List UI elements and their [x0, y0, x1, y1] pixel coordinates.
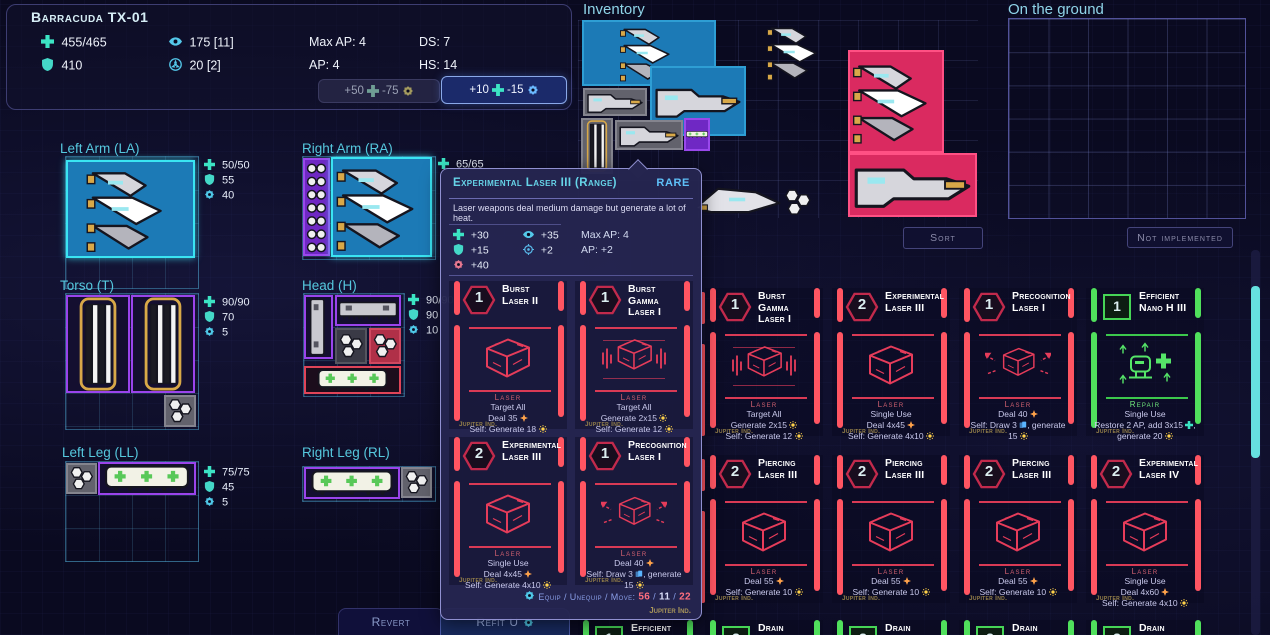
sh-icon	[453, 244, 464, 255]
dmg-icon	[776, 577, 784, 585]
card-title: Burst Gamma Laser I	[628, 284, 682, 319]
card-text: Single UseDeal 4x45 Self: Generate 4x10	[451, 558, 565, 591]
card-cost: 2	[1099, 459, 1133, 489]
card-art-cube	[475, 332, 541, 387]
card-title: Precognition Laser I	[628, 440, 682, 463]
card-drain[interactable]: 3 Drain	[959, 620, 1077, 635]
equipped-item-right-leg-tread[interactable]	[304, 467, 400, 499]
card-title: Piercing Laser III	[1012, 458, 1066, 481]
tooltip-stat: +15	[453, 244, 489, 259]
heat-icon	[922, 588, 930, 596]
sh-icon	[408, 309, 419, 320]
tooltip-maker: Jupiter Ind.	[649, 606, 691, 615]
card-drain[interactable]: 3 Drain	[832, 620, 950, 635]
divider	[449, 224, 561, 225]
card-title: Experimental Laser III	[502, 440, 556, 463]
card-title: Piercing Laser III	[758, 458, 812, 481]
vent-icon	[169, 58, 182, 71]
card-art-wave	[601, 332, 667, 387]
gear-icon	[204, 189, 215, 200]
gear-icon	[408, 324, 419, 335]
card-type: Laser	[705, 567, 823, 576]
card-cost: 2	[845, 459, 879, 489]
card-title: Drain	[1012, 623, 1066, 635]
gear-icon	[527, 84, 539, 96]
card-efficient-nano-h-iii[interactable]: 1 Efficient Nano H III Repair Single Use…	[1086, 288, 1204, 436]
stat-vent: 20 [2]	[169, 58, 221, 73]
hp-icon	[367, 85, 379, 97]
part-stat: 50/50	[204, 159, 250, 174]
card-art-wave	[731, 339, 797, 394]
part-stat: 5	[204, 326, 250, 341]
part-stat: 90/90	[204, 296, 250, 311]
part-label-right-arm: Right Arm (RA)	[302, 141, 393, 156]
repair-option-button[interactable]: +50 -75	[318, 79, 440, 103]
card-experimental-laser-iii[interactable]: 2 Experimental Laser III Laser Single Us…	[832, 288, 950, 436]
card-type: Laser	[832, 567, 950, 576]
heat-icon	[789, 421, 797, 429]
card-cost: 1	[588, 441, 622, 471]
stat-health: 455/465	[41, 35, 107, 50]
inventory-item-tread-single[interactable]	[684, 118, 710, 151]
dmg-icon	[524, 570, 532, 578]
equipped-item-head-tread[interactable]	[304, 366, 401, 394]
heat-icon	[636, 581, 644, 589]
card-title: Drain	[1139, 623, 1193, 635]
card-maker: Jupiter Ind.	[1096, 595, 1134, 602]
gear-icon	[402, 85, 414, 97]
sh-icon	[204, 481, 215, 492]
card-title: Precognition Laser I	[1012, 291, 1066, 314]
gear-icon	[524, 590, 535, 601]
hp-icon	[204, 159, 215, 170]
card-text: Deal 40 Self: Draw 3 , generate15	[961, 409, 1075, 442]
gear-icon	[204, 496, 215, 507]
part-stats-torso: 90/90 70 5	[204, 296, 250, 341]
heat-icon	[659, 414, 667, 422]
card-maker: Jupiter Ind.	[459, 577, 497, 584]
card-title: Drain	[885, 623, 939, 635]
card-art-arrows	[601, 488, 667, 543]
card-cost: 2	[972, 459, 1006, 489]
card-cost: 1	[595, 626, 623, 635]
stat-ds: DS: 7	[419, 35, 450, 49]
tooltip-stat: +40	[453, 259, 489, 274]
part-stat: 45	[204, 481, 250, 496]
tooltip-stats-col2: +35 +2	[523, 229, 559, 259]
part-label-torso: Torso (T)	[60, 278, 114, 293]
inventory-item-arm-plain[interactable]	[748, 21, 844, 83]
card-type: Laser	[959, 567, 1077, 576]
ground-grid	[1008, 18, 1246, 219]
card-type: Laser	[449, 393, 567, 402]
scrollbar-thumb[interactable]	[1251, 286, 1260, 458]
card-cost: 2	[845, 292, 879, 322]
card-title: Efficient Nano H III	[1139, 291, 1193, 314]
inventory-item-gun-pink[interactable]	[848, 153, 977, 217]
card-cost: 3	[722, 626, 750, 635]
equip-cost: 56	[638, 592, 650, 603]
card-piercing-laser-iii[interactable]: 2 Piercing Laser III Laser Deal 55 Self:…	[705, 455, 823, 603]
card-maker: Jupiter Ind.	[715, 595, 753, 602]
hp-icon	[408, 294, 419, 305]
card-burst-laser-ii[interactable]: 1 Burst Laser II Laser Target AllDeal 35…	[449, 281, 567, 429]
dmg-icon	[907, 421, 915, 429]
equipped-item-left-leg-hex-module[interactable]	[66, 463, 97, 494]
part-stats-left-leg: 75/75 45 5	[204, 466, 250, 511]
tooltip-stat: +30	[453, 229, 489, 244]
card-precognition-laser-i[interactable]: 1 Precognition Laser I Laser Deal 40 Sel…	[959, 288, 1077, 436]
sort-button[interactable]: Sort	[903, 227, 983, 249]
inventory-item-experimental-laser-hovered[interactable]	[848, 50, 944, 153]
stat-view-range: 175 [11]	[169, 35, 234, 50]
equipped-item-head-chip-vertical[interactable]	[304, 295, 333, 359]
gear-icon	[204, 326, 215, 337]
card-cost: 3	[976, 626, 1004, 635]
heat-icon	[1165, 432, 1173, 440]
hp-icon	[453, 229, 464, 240]
rarity-badge: RARE	[656, 177, 690, 189]
unequip-cost: 11	[659, 592, 670, 603]
mech-outfit-screen: Barracuda TX-01 455/465 410 175 [11] 20 …	[0, 0, 1270, 635]
heat-icon	[1020, 432, 1028, 440]
card-cost: 2	[462, 441, 496, 471]
gearp-icon	[453, 259, 464, 270]
card-type: Laser	[959, 400, 1077, 409]
heat-icon	[1180, 599, 1188, 607]
heat-icon	[539, 425, 547, 433]
dmg-icon	[520, 414, 528, 422]
tooltip-stat: Max AP: 4	[581, 229, 629, 244]
equipped-item-left-arm-laser[interactable]	[66, 160, 195, 258]
hp-icon	[492, 84, 504, 96]
heat-icon	[926, 432, 934, 440]
equipped-item-head-hex-module-1[interactable]	[335, 328, 367, 364]
card-art-arrows	[985, 339, 1051, 394]
equipped-item-right-leg-hex-module[interactable]	[401, 467, 432, 498]
card-art-cube	[858, 506, 924, 561]
card-burst-gamma-laser-i[interactable]: 1 Burst Gamma Laser I Laser Target AllGe…	[575, 281, 693, 429]
part-stat: 70	[204, 311, 250, 326]
card-cost: 1	[972, 292, 1006, 322]
tooltip-title: Experimental Laser III (Range)	[453, 177, 617, 189]
tooltip-stats-col3: Max AP: 4AP: +2	[581, 229, 629, 259]
card-maker: Jupiter Ind.	[1096, 428, 1134, 435]
stat-max-ap: Max AP: 4	[309, 35, 366, 49]
card-text: Single UseDeal 4x60 Self: Generate 4x10	[1088, 576, 1202, 609]
part-stat: 5	[204, 496, 250, 511]
mech-name: Barracuda TX-01	[31, 9, 148, 25]
card-title: Burst Laser II	[502, 284, 556, 307]
card-piercing-laser-iii[interactable]: 2 Piercing Laser III Laser Deal 55 Self:…	[959, 455, 1077, 603]
card-type: Laser	[575, 393, 693, 402]
card-maker: Jupiter Ind.	[969, 428, 1007, 435]
equipped-item-head-hex-module-2[interactable]	[369, 328, 401, 364]
card-cost: 1	[588, 285, 622, 315]
inventory-item-wing[interactable]	[693, 182, 783, 217]
equipped-item-torso-radiator-1[interactable]	[66, 295, 130, 393]
stat-ap: AP: 4	[309, 58, 340, 72]
part-stat: 40	[204, 189, 250, 204]
heat-icon	[543, 581, 551, 589]
part-label-right-leg: Right Leg (RL)	[302, 445, 390, 460]
tooltip-stats-col1: +30 +15 +40	[453, 229, 489, 274]
card-experimental-laser-iv[interactable]: 2 Experimental Laser IV Laser Single Use…	[1086, 455, 1204, 603]
card-burst-gamma-laser-i[interactable]: 1 Burst Gamma Laser I Laser Target AllGe…	[705, 288, 823, 436]
card-text: Deal 40 Self: Draw 3 , generate15	[577, 558, 691, 591]
card-cost: 1	[718, 292, 752, 322]
card-type: Laser	[832, 400, 950, 409]
eye-icon	[523, 229, 534, 240]
card-type: Laser	[449, 549, 567, 558]
card-text: Target AllDeal 35 Self: Generate 18	[451, 402, 565, 435]
heat-icon	[795, 432, 803, 440]
card-art-cube	[858, 339, 924, 394]
card-type: Laser	[705, 400, 823, 409]
tgt-icon	[523, 244, 534, 255]
card-cost: 2	[718, 459, 752, 489]
inventory-item-radiator[interactable]	[581, 118, 613, 174]
hp-icon	[204, 296, 215, 307]
heat-icon	[795, 588, 803, 596]
repair-selected-button[interactable]: +10 -15	[441, 76, 567, 104]
card-maker: Jupiter Ind.	[842, 595, 880, 602]
card-efficient[interactable]: 1 Efficient	[578, 620, 696, 635]
part-label-left-leg: Left Leg (LL)	[62, 445, 139, 460]
card-cost: 3	[849, 626, 877, 635]
card-art-cube	[475, 488, 541, 543]
card-maker: Jupiter Ind.	[715, 428, 753, 435]
card-drain[interactable]: 3 Drain	[1086, 620, 1204, 635]
card-cost: 1	[462, 285, 496, 315]
equipped-item-right-arm-laser[interactable]	[331, 157, 432, 257]
dmg-icon	[1030, 577, 1038, 585]
hp-icon	[204, 466, 215, 477]
tooltip-stat: +35	[523, 229, 559, 244]
card-drain[interactable]: 3 Drain	[705, 620, 823, 635]
card-text: Single UseRestore 2 AP, add 3x15 ,genera…	[1088, 409, 1202, 442]
equipped-item-left-leg-tread[interactable]	[98, 462, 196, 495]
equipped-item-torso-radiator-2[interactable]	[131, 295, 195, 393]
card-text: Single UseDeal 4x45 Self: Generate 4x10	[834, 409, 948, 442]
part-stat: 55	[204, 174, 250, 189]
divider	[449, 198, 693, 199]
card-title: Burst Gamma Laser I	[758, 291, 812, 326]
card-piercing-laser-iii[interactable]: 2 Piercing Laser III Laser Deal 55 Self:…	[832, 455, 950, 603]
card-experimental-laser-iii[interactable]: 2 Experimental Laser III Laser Single Us…	[449, 437, 567, 585]
hp-icon	[41, 35, 54, 48]
ground-title: On the ground	[1008, 1, 1104, 18]
part-stat: 75/75	[204, 466, 250, 481]
eye-icon	[169, 35, 182, 48]
move-cost: 22	[679, 592, 691, 603]
equipped-item-right-arm-ammo[interactable]	[303, 158, 330, 256]
tooltip-stat: AP: +2	[581, 244, 629, 259]
card-type: Laser	[1086, 567, 1204, 576]
card-title: Experimental Laser III	[885, 291, 939, 314]
card-maker: Jupiter Ind.	[585, 577, 623, 584]
card-title: Piercing Laser III	[885, 458, 939, 481]
inventory-title: Inventory	[583, 1, 645, 18]
sh-icon	[204, 311, 215, 322]
stat-armor: 410	[41, 58, 82, 73]
dmg-icon	[903, 577, 911, 585]
card-art-cube	[985, 506, 1051, 561]
sh-icon	[41, 58, 54, 71]
not-implemented-button[interactable]: Not implemented	[1127, 227, 1233, 248]
card-art-repair	[1112, 339, 1178, 394]
dmg-icon	[646, 559, 654, 567]
hp-icon	[1185, 421, 1193, 429]
divider	[449, 275, 693, 276]
card-maker: Jupiter Ind.	[969, 595, 1007, 602]
card-cost: 1	[1103, 294, 1131, 320]
tooltip-description: Laser weapons deal medium damage but gen…	[453, 203, 693, 223]
inventory-item-gun-small[interactable]	[583, 88, 647, 116]
card-text: Target AllGenerate 2x15 Self: Generate 1…	[707, 409, 821, 442]
tooltip-stat: +2	[523, 244, 559, 259]
part-stats-left-arm: 50/50 55 40	[204, 159, 250, 204]
heat-icon	[1049, 588, 1057, 596]
revert-button[interactable]: Revert	[338, 608, 444, 635]
equip-cost-summary: Equip / Unequip / Move: 56 / 11 / 22	[524, 590, 691, 603]
item-tooltip: Experimental Laser III (Range) RARE Lase…	[440, 168, 702, 620]
stat-hs: HS: 14	[419, 58, 457, 72]
card-maker: Jupiter Ind.	[459, 421, 497, 428]
inventory-item-hex-module[interactable]	[782, 187, 813, 218]
card-title: Drain	[758, 623, 812, 635]
equipped-item-head-chip-horizontal[interactable]	[335, 295, 401, 326]
part-label-head: Head (H)	[302, 278, 357, 293]
draw-icon	[635, 570, 643, 578]
card-cost: 3	[1103, 626, 1131, 635]
card-art-cube	[731, 506, 797, 561]
dmg-icon	[1161, 588, 1169, 596]
part-label-left-arm: Left Arm (LA)	[60, 141, 140, 156]
card-title: Experimental Laser IV	[1139, 458, 1193, 481]
card-precognition-laser-i[interactable]: 1 Precognition Laser I Laser Deal 40 Sel…	[575, 437, 693, 585]
card-maker: Jupiter Ind.	[585, 421, 623, 428]
card-maker: Jupiter Ind.	[842, 428, 880, 435]
sh-icon	[204, 174, 215, 185]
inventory-item-gun-small-2[interactable]	[615, 120, 683, 150]
heat-icon	[665, 425, 673, 433]
card-title: Efficient	[631, 623, 685, 635]
dmg-icon	[1030, 410, 1038, 418]
card-art-cube	[1112, 506, 1178, 561]
equip-cost-label: Equip / Unequip / Move:	[524, 592, 635, 602]
draw-icon	[1019, 421, 1027, 429]
card-type: Laser	[575, 549, 693, 558]
card-type: Repair	[1086, 400, 1204, 409]
card-text: Target AllGenerate 2x15 Self: Generate 1…	[577, 402, 691, 435]
equipped-item-torso-hex-module[interactable]	[164, 395, 196, 427]
